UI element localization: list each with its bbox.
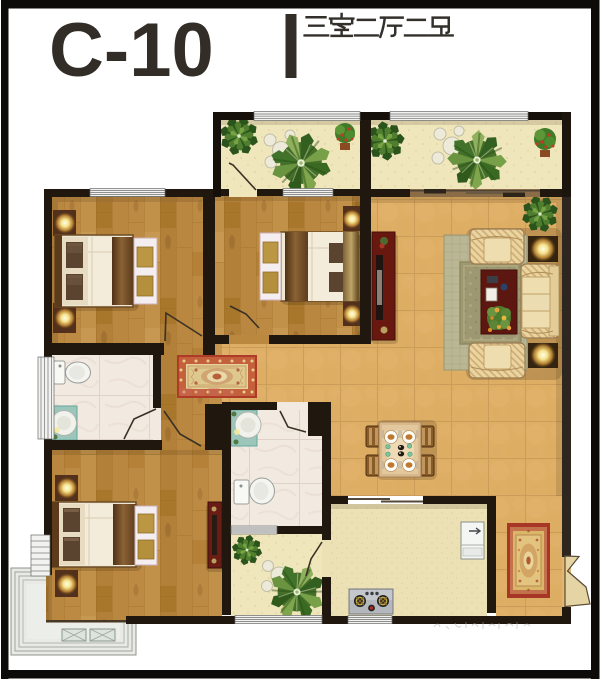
svg-text:C-10: C-10 <box>49 8 214 93</box>
